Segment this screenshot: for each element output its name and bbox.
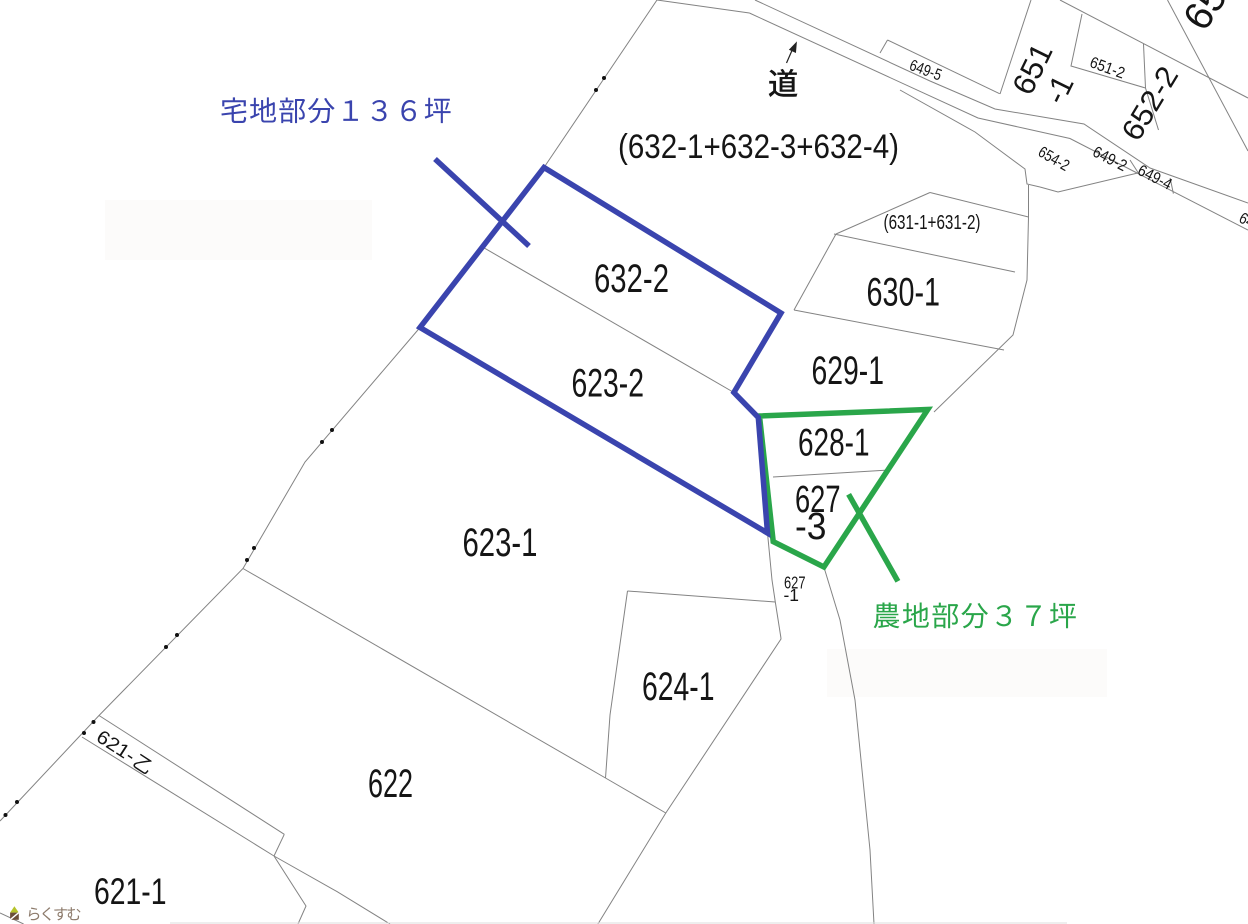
svg-text:651-2: 651-2 (1087, 54, 1127, 82)
svg-text:623-2: 623-2 (572, 362, 645, 406)
svg-text:621-: 621- (92, 727, 139, 767)
svg-text:630-1: 630-1 (867, 271, 941, 315)
svg-text:-3: -3 (795, 506, 827, 548)
svg-text:649-2: 649-2 (1090, 144, 1130, 176)
svg-text:650: 650 (1175, 0, 1248, 38)
svg-text:649-4: 649-4 (1135, 162, 1175, 194)
svg-text:(631-1+631-2): (631-1+631-2) (884, 211, 981, 234)
svg-text:628-1: 628-1 (798, 422, 870, 465)
svg-text:654-2: 654-2 (1035, 144, 1072, 175)
svg-text:-1: -1 (784, 585, 800, 605)
svg-text:623-1: 623-1 (463, 521, 538, 565)
svg-text:632-2: 632-2 (594, 257, 669, 301)
svg-text:622: 622 (368, 762, 413, 806)
svg-text:652-2: 652-2 (1116, 61, 1185, 147)
svg-text:624-1: 624-1 (642, 665, 715, 709)
svg-text:621-1: 621-1 (94, 871, 167, 912)
svg-text:(632-1+632-3+632-4): (632-1+632-3+632-4) (618, 128, 899, 166)
svg-text:649-5: 649-5 (907, 57, 944, 84)
svg-text:64: 64 (1236, 210, 1248, 232)
svg-text:629-1: 629-1 (812, 349, 885, 393)
